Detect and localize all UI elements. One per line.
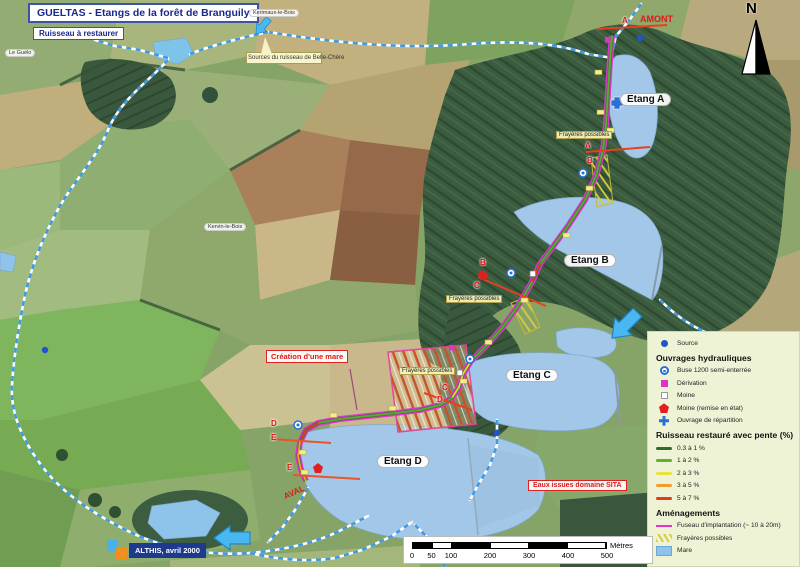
pente-2-swatch [656, 459, 672, 462]
legend-label: Ouvrage de répartition [677, 417, 743, 424]
pente-4-swatch [656, 484, 672, 487]
legend-row-fuseau: Fuseau d'implantation (~ 10 à 20m) [656, 520, 795, 533]
legend-label: 5 à 7 % [677, 495, 699, 502]
section-letter: C [474, 281, 480, 290]
legend-row-frayeres: Frayères possibles [656, 532, 795, 545]
legend-row-pente3: 2 à 3 % [656, 467, 795, 480]
map-subtitle: Ruisseau à restaurer [33, 27, 124, 40]
section-letter: E [287, 463, 292, 472]
legend-row-moine-restaure: Moine (remise en état) [656, 402, 795, 415]
legend-label: Moine [677, 392, 695, 399]
north-label: N [746, 0, 757, 17]
legend-row-mare: Mare [656, 545, 795, 558]
etang-d-label: Etang D [377, 455, 429, 468]
buse-icon [660, 366, 669, 375]
legend-row-moine: Moine [656, 390, 795, 403]
pente-1-swatch [656, 447, 672, 450]
creation-mare-note: Création d'une mare [266, 350, 348, 363]
section-letter: A [585, 141, 591, 150]
legend-panel: Source Ouvrages hydrauliques Buse 1200 s… [647, 331, 800, 567]
amont-label: AMONT [640, 14, 673, 24]
sources-callout: Sources du ruisseau de Belle-Chère [246, 52, 322, 64]
place-label-kerimaux: Kerimaux-le-Bois [249, 9, 299, 17]
althis-logo-orange [116, 548, 127, 559]
fuseau-line-icon [656, 525, 672, 528]
legend-row-pente1: 0.3 à 1 % [656, 442, 795, 455]
frayeres-label-c: Frayères possibles [399, 367, 455, 375]
legend-header-pente: Ruisseau restauré avec pente (%) [656, 430, 795, 440]
legend-label: Mare [677, 547, 692, 554]
legend-row-buse: Buse 1200 semi-enterrée [656, 365, 795, 378]
legend-label: Buse 1200 semi-enterrée [677, 367, 751, 374]
legend-label: 3 à 5 % [677, 482, 699, 489]
map-title: GUELTAS - Etangs de la forêt de Branguil… [28, 3, 259, 23]
derivation-icon [661, 380, 668, 387]
legend-row-pente5: 5 à 7 % [656, 492, 795, 505]
place-label-kervin: Kervin-le-Bois [204, 223, 246, 231]
frayeres-label-b: Frayères possibles [446, 295, 502, 303]
scalebar-tick: 300 [523, 551, 536, 560]
moine-icon [661, 392, 668, 399]
eaux-sita-note: Eaux issues domaine SITA [528, 480, 627, 491]
scalebar-tick: 100 [445, 551, 458, 560]
etang-c-label: Etang C [506, 369, 558, 382]
frayeres-label-a: Frayères possibles [556, 131, 612, 139]
legend-header-ouvrages: Ouvrages hydrauliques [656, 353, 795, 363]
section-letter: A [622, 16, 628, 25]
callout-pointer [261, 37, 272, 54]
scalebar: 0 50 100 200 300 400 500 Mètres [403, 536, 653, 564]
scalebar-tick: 200 [484, 551, 497, 560]
section-letter: E [271, 433, 276, 442]
moine-restaure-icon [659, 403, 669, 413]
scalebar-bar [412, 542, 607, 549]
legend-row-repartition: Ouvrage de répartition [656, 415, 795, 428]
legend-label: Moine (remise en état) [677, 405, 743, 412]
section-letter: D [271, 419, 277, 428]
scalebar-unit: Mètres [610, 541, 633, 550]
mare-swatch-icon [656, 546, 672, 556]
legend-label: Source [677, 340, 698, 347]
section-letter: D [437, 395, 443, 404]
section-letter: B [587, 156, 593, 165]
etang-a-label: Etang A [620, 93, 671, 106]
etang-b-label: Etang B [564, 254, 616, 267]
pente-3-swatch [656, 472, 672, 475]
legend-label: Dérivation [677, 380, 707, 387]
legend-row-pente4: 3 à 5 % [656, 480, 795, 493]
credit-box: ALTHIS, avril 2000 [129, 543, 206, 558]
section-letter: B [480, 258, 486, 267]
ouvrage-repartition-icon [659, 416, 669, 426]
section-letter: C [442, 383, 448, 392]
scalebar-tick: 500 [601, 551, 614, 560]
frayeres-hatch-icon [656, 534, 672, 542]
map-stage: GUELTAS - Etangs de la forêt de Branguil… [0, 0, 800, 567]
source-icon [661, 340, 668, 347]
legend-row-derivation: Dérivation [656, 377, 795, 390]
legend-label: Frayères possibles [677, 535, 732, 542]
pente-5-swatch [656, 497, 672, 500]
scalebar-tick: 50 [427, 551, 435, 560]
scalebar-tick: 400 [562, 551, 575, 560]
legend-label: 2 à 3 % [677, 470, 699, 477]
scalebar-tick: 0 [410, 551, 414, 560]
legend-label: Fuseau d'implantation (~ 10 à 20m) [677, 522, 781, 529]
legend-header-amenagements: Aménagements [656, 508, 795, 518]
legend-label: 1 à 2 % [677, 457, 699, 464]
place-label-le-guelo: Le Guélo [5, 49, 35, 57]
legend-row-pente2: 1 à 2 % [656, 455, 795, 468]
legend-label: 0.3 à 1 % [677, 445, 705, 452]
legend-source-row: Source [656, 337, 795, 350]
